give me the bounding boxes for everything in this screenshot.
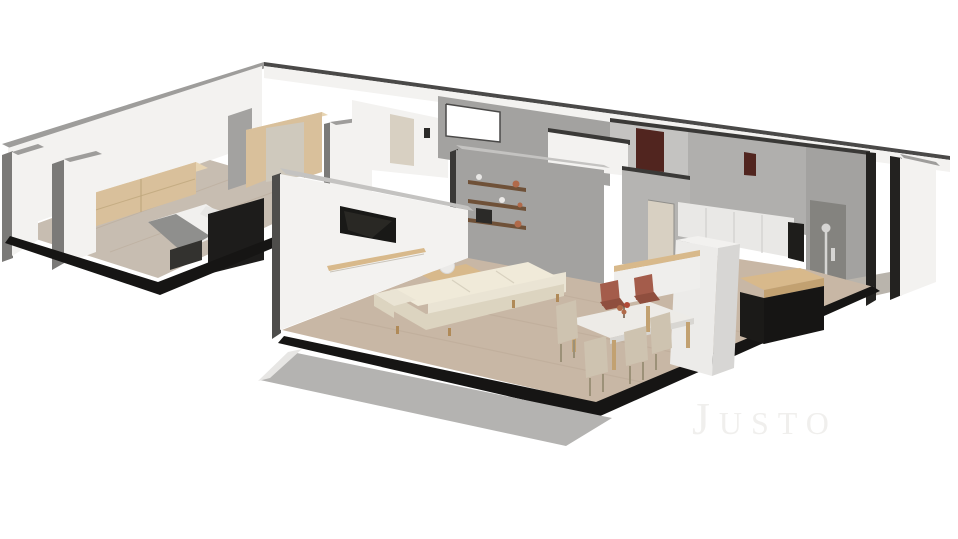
- wall-sconce: [424, 128, 430, 138]
- sofa-leg: [556, 294, 559, 302]
- table-leg: [686, 322, 690, 348]
- dining-chair-beige: [556, 300, 578, 344]
- cabinet-niche: [788, 222, 804, 262]
- table-leg: [646, 306, 650, 332]
- outer-wall-edge: [2, 151, 13, 262]
- floor-plan-render: Justo: [0, 0, 958, 539]
- wall-cut-edge: [866, 152, 876, 306]
- kitchen-door: [648, 200, 674, 264]
- decor-vase: [513, 181, 520, 188]
- entry-door-maroon: [636, 128, 664, 172]
- hallway-wall: [64, 151, 96, 264]
- dining-chair-beige: [624, 326, 648, 366]
- inner-door: [390, 114, 414, 166]
- dining-chair-beige: [584, 336, 608, 378]
- tv-wall-edge: [272, 173, 281, 339]
- wardrobe-left: [246, 127, 266, 188]
- flower: [622, 310, 627, 315]
- sofa-leg: [448, 328, 451, 336]
- shower-handset: [831, 248, 835, 261]
- flower: [617, 305, 623, 311]
- apartment-3d-scene: [0, 0, 958, 539]
- decor-frame: [476, 208, 492, 224]
- decor-vase: [499, 197, 505, 203]
- decor-sphere: [476, 174, 482, 180]
- decor-vase: [518, 203, 523, 208]
- dining-chair-beige: [650, 312, 672, 354]
- outer-right-wall: [900, 158, 936, 296]
- shower-head: [822, 224, 831, 233]
- table-leg: [612, 340, 616, 370]
- decor-pot: [515, 221, 522, 228]
- counter-base-black: [740, 292, 764, 344]
- sofa-leg: [512, 300, 515, 308]
- watermark: Justo: [692, 392, 838, 445]
- flower: [624, 302, 630, 308]
- sofa-leg: [396, 326, 399, 334]
- hall-door-maroon: [744, 152, 756, 176]
- wardrobe-right: [304, 118, 322, 178]
